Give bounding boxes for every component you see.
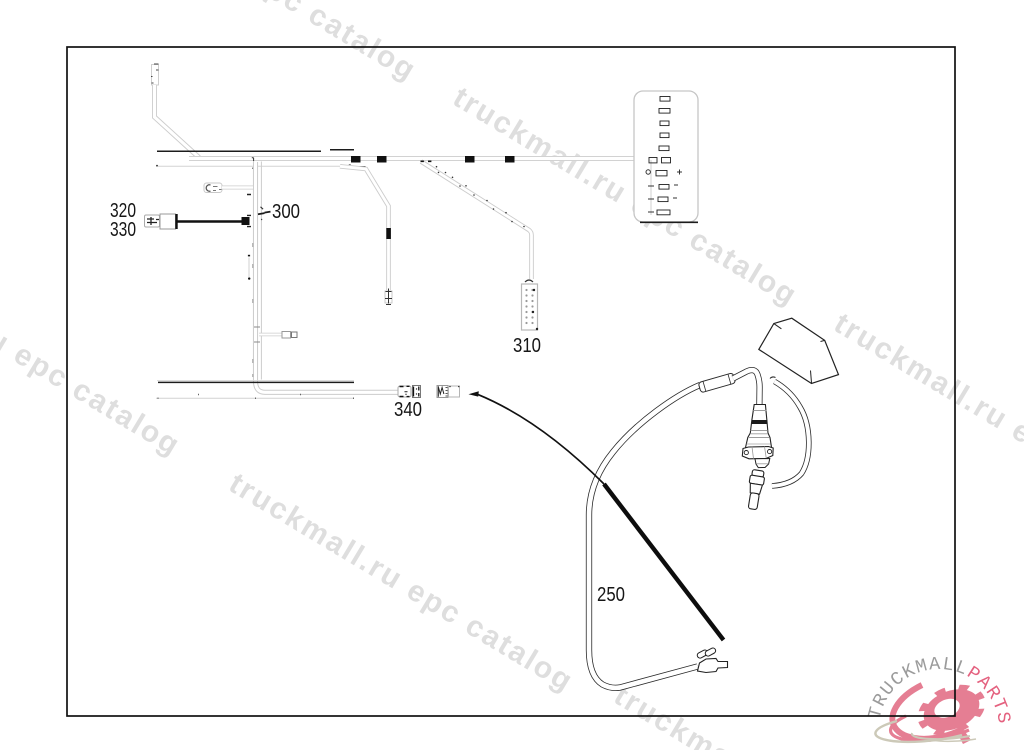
svg-text:250: 250 [597, 583, 625, 606]
svg-text:330: 330 [110, 218, 136, 241]
svg-text:310: 310 [513, 334, 541, 357]
svg-text:340: 340 [394, 398, 422, 421]
svg-text:300: 300 [272, 200, 300, 223]
